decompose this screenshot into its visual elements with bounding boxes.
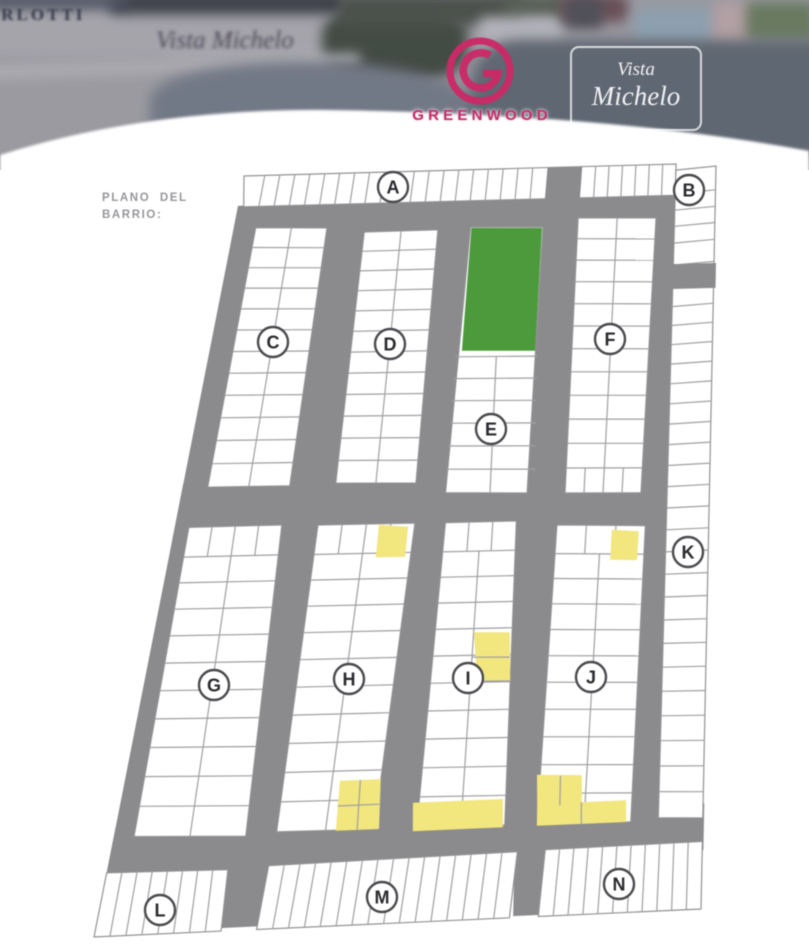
svg-text:G: G xyxy=(207,676,221,696)
svg-text:B: B xyxy=(683,181,696,201)
svg-text:F: F xyxy=(605,330,616,350)
svg-text:K: K xyxy=(682,543,695,563)
svg-text:H: H xyxy=(343,670,356,690)
svg-text:N: N xyxy=(613,875,626,895)
svg-text:A: A xyxy=(387,178,400,198)
svg-text:M: M xyxy=(375,888,390,908)
svg-text:J: J xyxy=(586,668,596,688)
svg-text:I: I xyxy=(465,669,470,689)
svg-text:C: C xyxy=(267,333,280,353)
svg-text:D: D xyxy=(384,335,397,355)
svg-text:E: E xyxy=(485,420,497,440)
svg-text:L: L xyxy=(155,901,166,921)
